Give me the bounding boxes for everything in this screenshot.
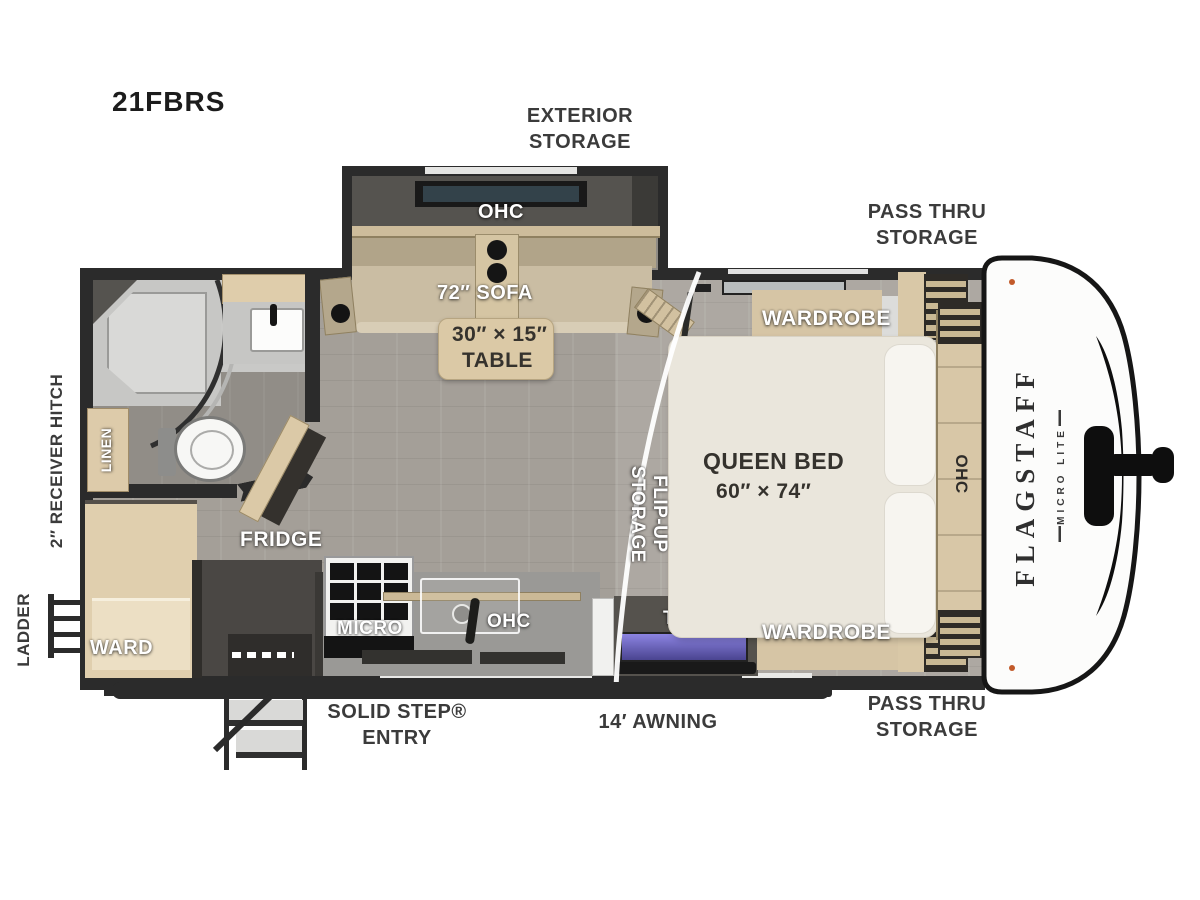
tv-base [616, 662, 756, 674]
slide-window [423, 186, 579, 202]
entry-step [236, 730, 302, 758]
wardrobe-bottom-label: WARDROBE [762, 621, 891, 645]
pillow [884, 344, 936, 486]
kitchen-divider [315, 572, 323, 676]
brand-dash [1059, 410, 1062, 426]
fridge-label: FRIDGE [240, 528, 322, 552]
slide-corner-shadow [632, 176, 658, 232]
model-number: 21FBRS [112, 84, 225, 120]
linen-label: LINEN [98, 415, 114, 485]
ladder-label: LADDER [13, 575, 35, 685]
vanity-counter [222, 274, 308, 304]
flip-up-storage-label: FLIP-UP STORAGE [626, 466, 670, 562]
receiver-hitch-label: 2″ RECEIVER HITCH [46, 346, 68, 576]
stove-grates [330, 562, 408, 620]
awning-rail [112, 682, 830, 699]
cupholder-icon [487, 240, 507, 260]
tv-bracket [695, 284, 711, 292]
window-trim [728, 269, 868, 274]
pillow [884, 492, 936, 634]
sink-icon [250, 308, 304, 352]
sofa-label: 72″ SOFA [437, 282, 533, 305]
cupholder-icon [487, 263, 507, 283]
awning-end [816, 677, 832, 697]
counter-end-panel [592, 598, 614, 676]
wardrobe-top-label: WARDROBE [762, 307, 891, 331]
entry-door-hinge [232, 652, 294, 658]
faucet-icon [270, 304, 277, 326]
slide-topper-trim [425, 167, 577, 174]
awning-end [104, 686, 116, 696]
bed-name-label: QUEEN BED [703, 448, 844, 475]
pass-thru-storage-top-label: PASS THRU STORAGE [845, 200, 1009, 251]
brand-sub: MICRO LITE [1056, 427, 1067, 525]
cupholder-icon [331, 304, 350, 323]
micro-label: MICRO [337, 618, 403, 640]
ward-divider [192, 560, 202, 678]
brand-dash [1059, 526, 1062, 542]
bed-size-label: 60″ × 74″ [716, 480, 811, 504]
marker-light [1009, 279, 1015, 285]
kitchen-ohc-label: OHC [487, 611, 531, 633]
exterior-storage-label: EXTERIOR STORAGE [505, 104, 655, 155]
corner-cabinet-top [898, 272, 926, 342]
hitch-coupler [1152, 447, 1174, 483]
bathroom-right-wall [305, 272, 320, 422]
table-word-label: TABLE [462, 349, 533, 373]
counter-toe-kick [362, 650, 472, 664]
brand-name: FLAGSTAFF [1010, 365, 1040, 587]
counter-toe-kick [480, 652, 565, 664]
front-cap: FLAGSTAFF MICRO LITE [968, 248, 1183, 703]
slide-ohc-label: OHC [478, 201, 524, 224]
floorplan-canvas: 21FBRS EXTERIOR STORAGE PASS THRU STORAG… [0, 0, 1200, 900]
hitch-tongue [1110, 454, 1156, 476]
propane-tank [1084, 426, 1114, 526]
ward-label: WARD [90, 637, 153, 660]
solid-step-entry-label: SOLID STEP® ENTRY [312, 700, 482, 751]
awning-label: 14′ AWNING [578, 710, 738, 736]
table-size-label: 30″ × 15″ [452, 323, 547, 347]
toilet-seat [190, 430, 234, 470]
marker-light [1009, 665, 1015, 671]
